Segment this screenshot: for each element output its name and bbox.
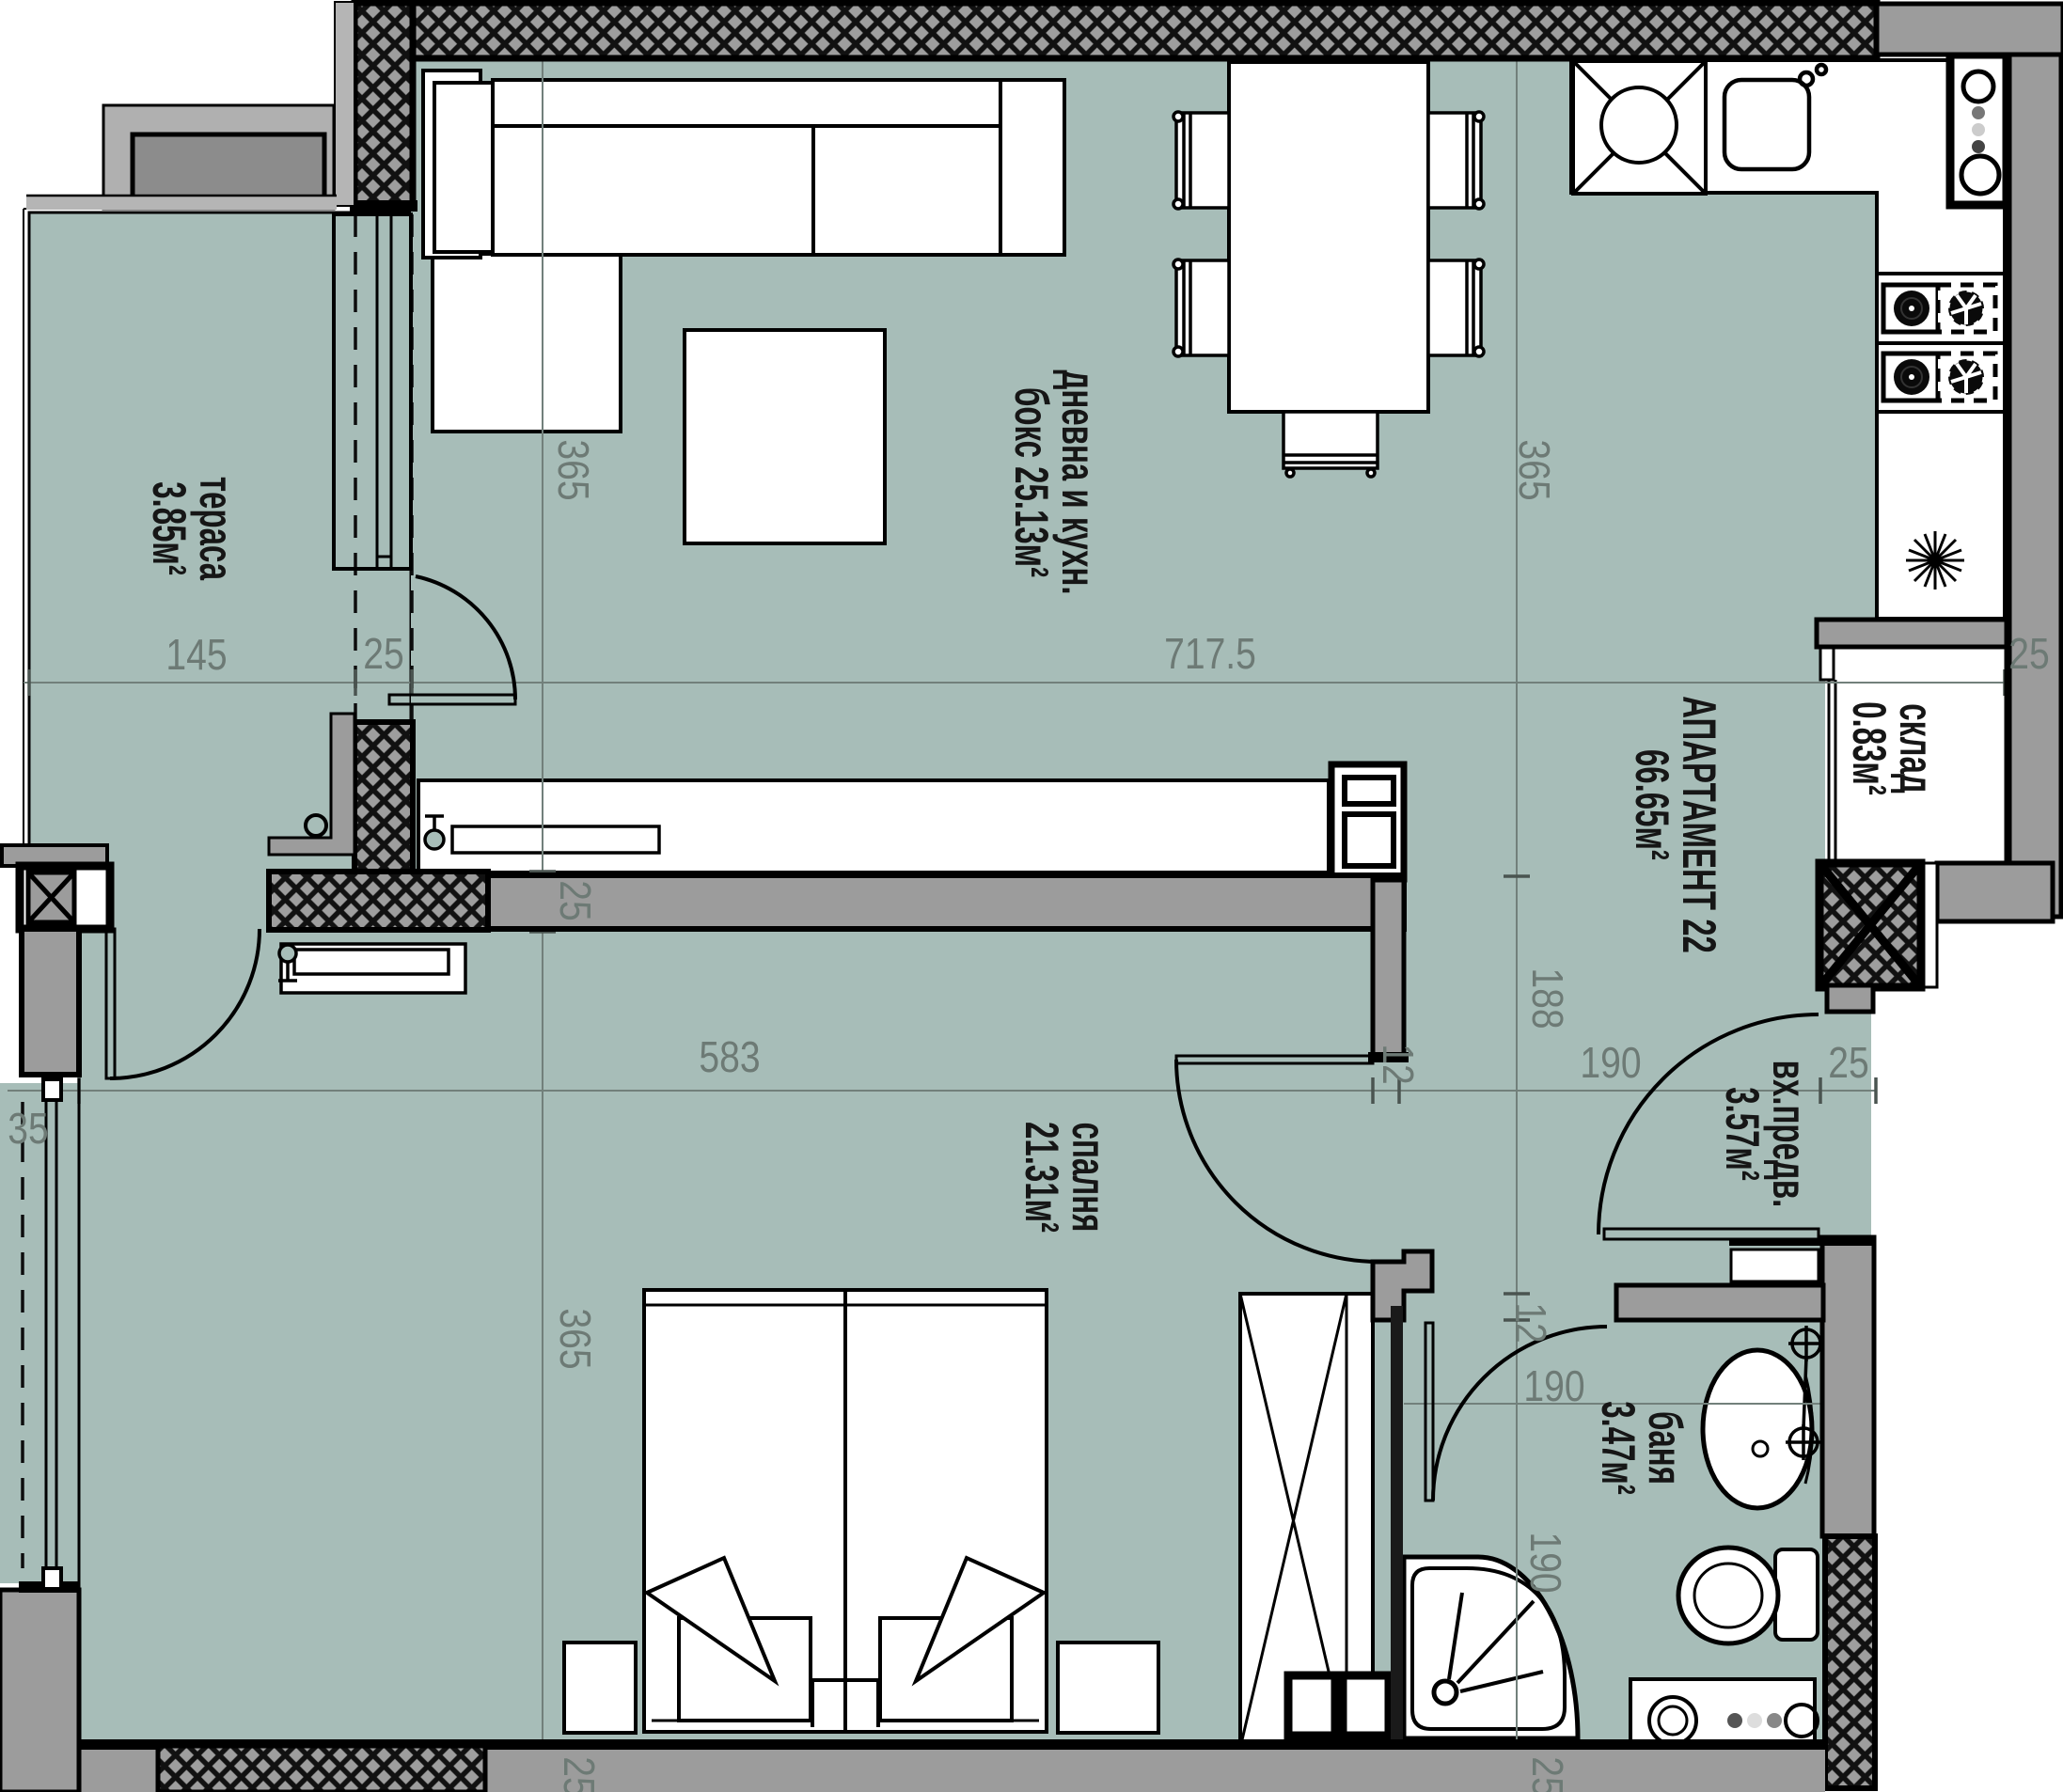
svg-text:вх.предв.: вх.предв. bbox=[1763, 1061, 1815, 1208]
svg-text:баня: баня bbox=[1639, 1411, 1691, 1485]
svg-text:583: 583 bbox=[699, 1033, 760, 1082]
svg-text:бокс 25.13м²: бокс 25.13м² bbox=[1005, 387, 1057, 577]
svg-text:190: 190 bbox=[1580, 1039, 1641, 1088]
svg-text:365: 365 bbox=[548, 439, 597, 500]
svg-text:3.57м²: 3.57м² bbox=[1716, 1087, 1768, 1181]
svg-text:25: 25 bbox=[1828, 1039, 1868, 1088]
svg-text:66.65м²: 66.65м² bbox=[1626, 749, 1677, 860]
svg-text:12: 12 bbox=[1505, 1302, 1554, 1343]
svg-text:АПАРТАМЕНТ 22: АПАРТАМЕНТ 22 bbox=[1673, 696, 1724, 953]
svg-text:25: 25 bbox=[1522, 1756, 1571, 1792]
svg-text:35: 35 bbox=[8, 1105, 48, 1154]
svg-text:спалня: спалня bbox=[1063, 1123, 1114, 1233]
svg-text:190: 190 bbox=[1520, 1532, 1569, 1593]
svg-text:0.83м²: 0.83м² bbox=[1843, 701, 1895, 795]
svg-text:188: 188 bbox=[1522, 967, 1571, 1029]
svg-text:3.85м²: 3.85м² bbox=[143, 481, 195, 575]
svg-text:3.47м²: 3.47м² bbox=[1592, 1401, 1644, 1495]
svg-text:25: 25 bbox=[550, 880, 599, 920]
svg-text:25: 25 bbox=[2008, 630, 2049, 679]
svg-text:190: 190 bbox=[1523, 1362, 1584, 1411]
svg-text:717.5: 717.5 bbox=[1164, 630, 1256, 679]
svg-text:тераса: тераса bbox=[190, 477, 242, 580]
svg-text:склад: склад bbox=[1890, 703, 1942, 794]
svg-text:25: 25 bbox=[554, 1756, 603, 1792]
svg-text:21.31м²: 21.31м² bbox=[1016, 1122, 1067, 1233]
svg-text:365: 365 bbox=[1509, 439, 1558, 500]
svg-text:25: 25 bbox=[363, 630, 403, 679]
svg-text:12: 12 bbox=[1373, 1044, 1422, 1084]
svg-text:365: 365 bbox=[550, 1308, 599, 1369]
svg-text:145: 145 bbox=[165, 631, 227, 680]
svg-text:дневна и кухн.: дневна и кухн. bbox=[1052, 369, 1104, 594]
